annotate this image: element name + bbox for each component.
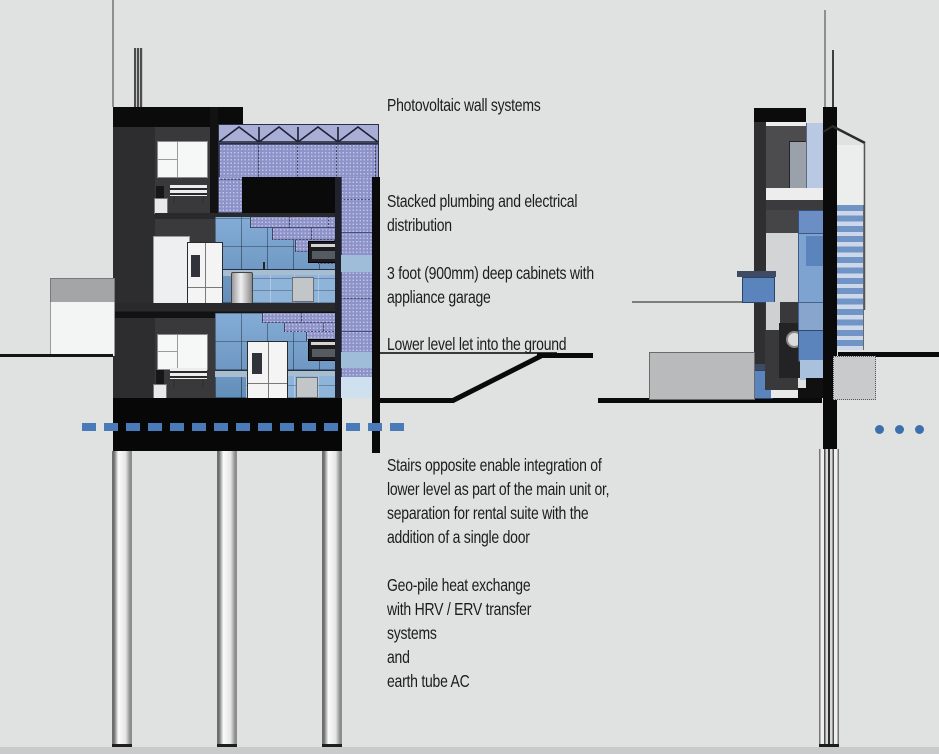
- lower-floor-bench: [170, 368, 207, 379]
- bench-leg: [202, 196, 204, 203]
- bath-fixture-light: [800, 360, 823, 380]
- pv-column-light-band: [341, 352, 372, 368]
- annotation-stairs-line3: separation for rental suite with the: [387, 501, 588, 525]
- pv-column-light-band: [341, 255, 372, 272]
- pv-wall-array: [218, 143, 379, 179]
- annotation-geopile-line4: and: [387, 645, 410, 669]
- stair-run: [837, 205, 864, 350]
- antenna-line-dark: [832, 50, 834, 110]
- grade-line-thin: [632, 301, 754, 303]
- geo-pile: [112, 451, 132, 747]
- glazing-pane: [806, 123, 823, 188]
- lower-room-pillar: [766, 302, 780, 330]
- stair-base-step: [798, 388, 823, 398]
- bath-fixture: [798, 330, 825, 362]
- top-floor-bin: [154, 198, 168, 214]
- bench-leg: [173, 196, 175, 203]
- faucet: [263, 262, 265, 270]
- geo-pile-right: [819, 449, 839, 747]
- bath-fixture: [798, 302, 825, 332]
- annotation-geopile-line5: earth tube AC: [387, 669, 470, 693]
- leader-bar: [372, 178, 380, 453]
- geo-pile: [322, 451, 342, 747]
- property-line: [112, 0, 114, 107]
- gable-interior: [837, 145, 863, 205]
- pv-overlay-step: [250, 217, 345, 228]
- bench-leg: [173, 379, 175, 388]
- ground-line-left: [0, 354, 113, 357]
- annotation-stairs-line4: addition of a single door: [387, 525, 530, 549]
- chimney-flues: [134, 48, 143, 108]
- garage-box: [649, 352, 755, 400]
- ellipsis-dot: [875, 425, 884, 434]
- dishwasher: [296, 377, 318, 398]
- right-roof-slab: [754, 108, 806, 122]
- neighbor-lower-box: [50, 302, 115, 356]
- annotation-geopile-line2: with HRV / ERV transfer: [387, 597, 531, 621]
- annotation-cabinets-line1: 3 foot (900mm) deep cabinets with: [387, 261, 594, 285]
- top-floor-cabinet-box: [156, 186, 164, 198]
- section-diagram: Photovoltaic wall systems Stacked plumbi…: [0, 0, 939, 754]
- antenna-line: [824, 10, 826, 108]
- geo-pile: [217, 451, 237, 747]
- lower-floor-window: [157, 334, 208, 370]
- mid-floor-closet: [153, 236, 190, 305]
- lower-floor-cabinet-box: [156, 370, 164, 384]
- top-floor-window: [157, 141, 208, 178]
- refrigerator: [187, 242, 223, 305]
- water-tank: [742, 277, 775, 303]
- right-floor-band: [766, 200, 823, 210]
- neighbor-upper-box: [50, 278, 115, 304]
- wall-sliver: [210, 107, 218, 213]
- annotation-stairs-line2: lower level as part of the main unit or,: [387, 477, 609, 501]
- datum-dashed-line: [82, 423, 406, 431]
- annotation-lower-level: Lower level let into the ground: [387, 332, 566, 356]
- pv-overlay-step: [262, 313, 341, 323]
- annotation-geopile-line1: Geo-pile heat exchange: [387, 573, 530, 597]
- ellipsis-dot: [915, 425, 924, 434]
- ellipsis-dot: [895, 425, 904, 434]
- dashed-outline-box: [833, 356, 876, 400]
- coffee-canister: [231, 272, 253, 305]
- annotation-geopile-line3: systems: [387, 621, 437, 645]
- annotation-photovoltaic: Photovoltaic wall systems: [387, 93, 541, 117]
- ground-line-lower-mid: [380, 398, 454, 403]
- pv-wall-strip: [218, 177, 242, 213]
- annotation-stairs-line1: Stairs opposite enable integration of: [387, 453, 602, 477]
- annotation-plumbing-line1: Stacked plumbing and electrical: [387, 189, 577, 213]
- right-floor-slab: [766, 188, 823, 200]
- top-floor-bench: [170, 185, 207, 196]
- lower-room-white-strip: [771, 390, 798, 398]
- mid-room-band: [766, 210, 800, 233]
- page-bottom-strip: [0, 747, 939, 754]
- pv-column-light-band: [341, 377, 372, 398]
- pv-overlay-step: [284, 323, 341, 332]
- left-wall: [113, 107, 156, 400]
- mid-room-blue-cabinet: [798, 210, 825, 235]
- dishwasher: [292, 277, 314, 302]
- refrigerator: [247, 341, 288, 400]
- annotation-cabinets-line2: appliance garage: [387, 285, 491, 309]
- mid-room-fixture: [806, 236, 823, 266]
- bench-leg: [202, 379, 204, 388]
- annotation-plumbing-line2: distribution: [387, 213, 452, 237]
- pv-truss: [218, 124, 379, 145]
